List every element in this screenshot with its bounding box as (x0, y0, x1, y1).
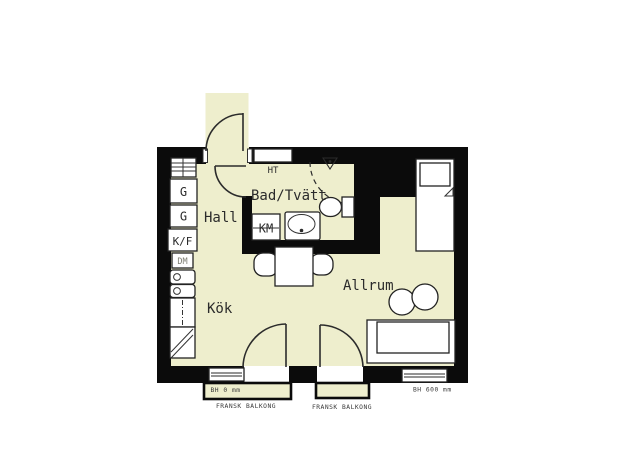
washing-machine: KM (252, 214, 280, 240)
sofa (367, 320, 455, 363)
label-bathroom: Bad/Tvätt (251, 188, 327, 204)
round-table-2 (412, 284, 438, 310)
wardrobe-1-label: G (180, 185, 187, 199)
bathroom-wall-right (354, 147, 380, 254)
floor-plan-page: G G K/F DM (0, 0, 625, 460)
dishwasher-label: DM (177, 257, 187, 267)
label-hall: Hall (204, 210, 238, 226)
balcony-slab-right (316, 383, 369, 398)
wall-top-block (380, 147, 417, 197)
wardrobe-cabinet-1: G (170, 179, 197, 203)
wall-left (157, 147, 171, 383)
floor-plan: G G K/F DM (0, 0, 625, 460)
stove-burner-unit-1 (170, 270, 195, 284)
bed (416, 159, 454, 251)
label-kitchen: Kök (207, 301, 233, 317)
vent-shelf-unit (171, 158, 196, 177)
label-sill-height-left: BH 0 mm (211, 387, 241, 394)
washbasin (285, 212, 320, 240)
kitchen-fixtures: G G K/F DM (168, 158, 197, 358)
window-kitchen (209, 368, 244, 381)
dining-table (275, 247, 313, 286)
label-livingroom: Allrum (343, 278, 394, 294)
label-french-balcony-left: FRANSK BALKONG (216, 403, 276, 410)
label-towel-dryer: HT (268, 166, 279, 176)
entrance-jamb-right (248, 149, 253, 163)
dishwasher: DM (172, 253, 193, 268)
entrance-vestibule-floor (206, 93, 249, 150)
balcony-door-opening-left (244, 366, 289, 383)
washing-machine-label: KM (259, 222, 273, 236)
window-livingroom (402, 369, 447, 382)
fridge-freezer-label: K/F (173, 235, 193, 248)
wall-right (454, 157, 468, 383)
label-sill-height-right: BH 600 mm (413, 387, 452, 394)
wardrobe-cabinet-2: G (170, 205, 197, 227)
label-french-balcony-right: FRANSK BALKONG (312, 404, 372, 411)
balcony-door-opening-right (317, 366, 363, 383)
kitchen-counter (170, 298, 195, 327)
kitchen-worktop (170, 327, 195, 358)
entrance-jamb-left (203, 149, 208, 163)
towel-dryer (254, 149, 292, 162)
fridge-freezer: K/F (168, 229, 197, 251)
wardrobe-2-label: G (180, 210, 187, 224)
stove-burner-unit-2 (170, 285, 195, 298)
